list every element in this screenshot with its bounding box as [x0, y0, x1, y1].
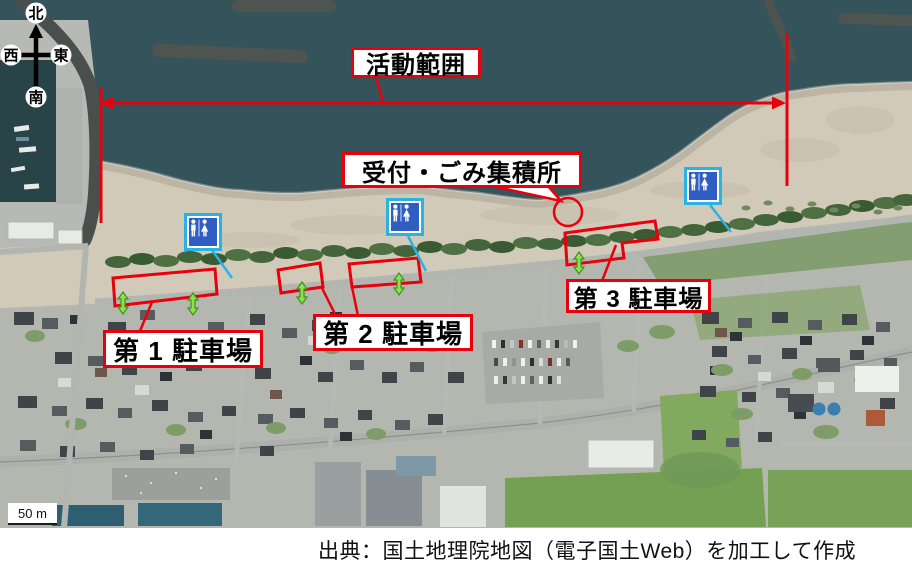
compass-north-label: 北 — [28, 6, 43, 23]
aerial-photo: 活動範囲 受付・ごみ集積所 第 1 駐車場 第 2 駐車場 第 3 駐車場 北 … — [0, 0, 912, 528]
parking-1-text: 第 1 駐車場 — [113, 331, 253, 368]
compass-west-label: 西 — [3, 48, 18, 65]
attribution: 出典：国土地理院地図（電子国土Web）を加工して作成 — [318, 535, 856, 565]
parking-3-label: 第 3 駐車場 — [566, 279, 711, 313]
toilet-icon — [684, 167, 722, 205]
restroom-pictogram — [389, 201, 413, 225]
compass-rose: 北 西 東 南 — [0, 0, 72, 110]
reception-garbage-label: 受付・ごみ集積所 — [342, 152, 582, 188]
compass-south-label: 南 — [28, 89, 43, 107]
toilet-icon — [184, 213, 222, 251]
north-arrowhead — [29, 24, 43, 38]
parking-2-text: 第 2 駐車場 — [323, 314, 463, 351]
restroom-pictogram — [687, 170, 711, 194]
restroom-pictogram — [187, 216, 211, 240]
parking-1-label: 第 1 駐車場 — [103, 330, 263, 368]
scale-bar-label: 50 m — [18, 506, 47, 521]
parking-3-text: 第 3 駐車場 — [574, 279, 704, 314]
activity-range-label: 活動範囲 — [351, 47, 481, 78]
reception-garbage-text: 受付・ごみ集積所 — [362, 153, 562, 188]
scale-bar: 50 m — [8, 503, 57, 525]
activity-range-text: 活動範囲 — [366, 45, 466, 80]
toilet-icon — [386, 198, 424, 236]
compass-east-label: 東 — [53, 47, 68, 65]
annotated-aerial-map: 活動範囲 受付・ごみ集積所 第 1 駐車場 第 2 駐車場 第 3 駐車場 北 … — [0, 0, 912, 573]
parking-2-label: 第 2 駐車場 — [313, 314, 473, 351]
